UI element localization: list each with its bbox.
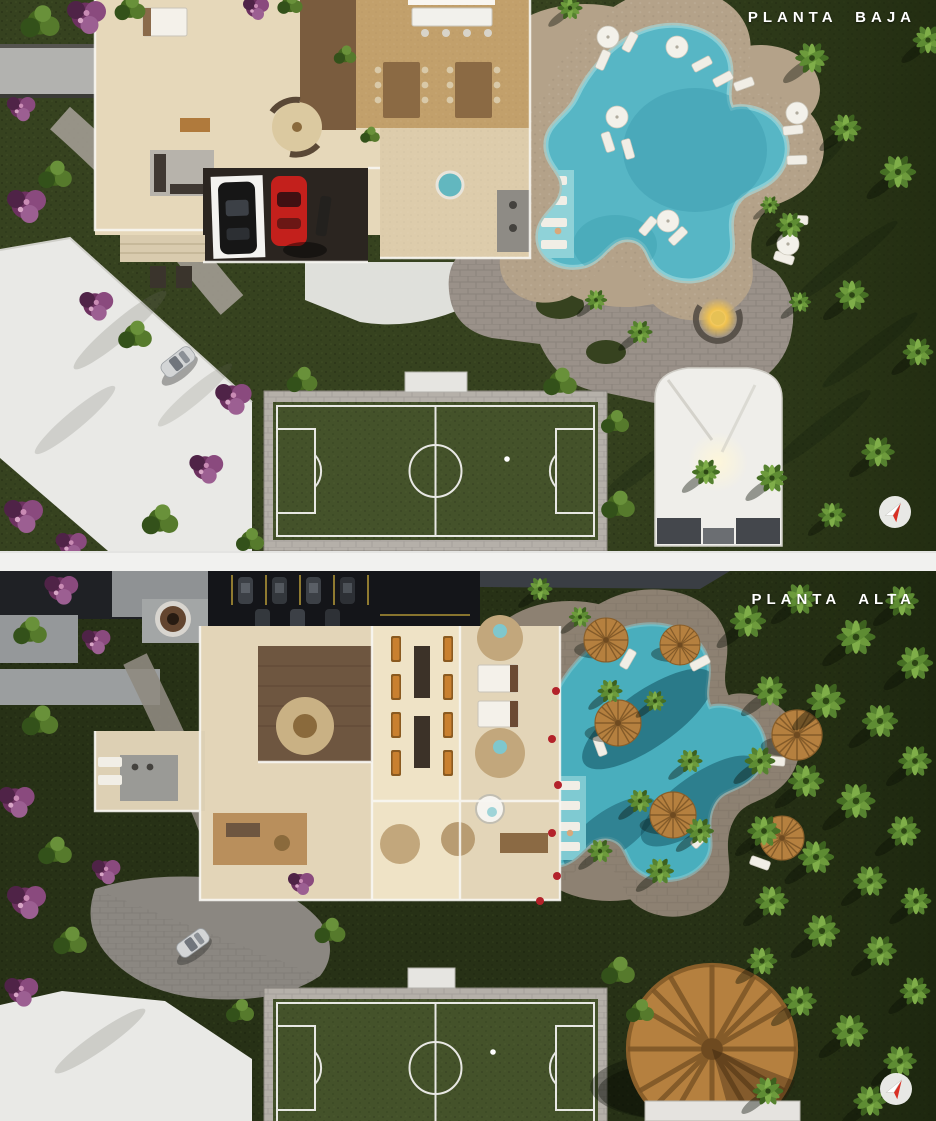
bedroom-2: [475, 701, 525, 778]
floor-label-planta-baja: PLANTA BAJA: [748, 9, 916, 26]
garage: [203, 168, 368, 262]
outdoor-kitchen: [497, 190, 530, 252]
compass-icon: [879, 496, 911, 528]
soccer-field-upper: [264, 968, 607, 1121]
soccer-ball: [504, 456, 510, 462]
bedroom-1: [477, 615, 523, 692]
jacuzzi: [437, 172, 463, 198]
panel-divider: [0, 551, 936, 571]
console-table: [180, 118, 210, 132]
soccer-field: [264, 372, 607, 551]
palapa-bar: [645, 1101, 800, 1121]
bench: [500, 833, 548, 853]
bed: [143, 8, 187, 36]
soccer-ball-upper: [490, 1049, 496, 1055]
house-floor-plan: [95, 0, 530, 288]
black-car: [218, 181, 257, 254]
field-bench-structure: [405, 372, 467, 392]
panel-planta-baja: PLANTA BAJA: [0, 0, 936, 559]
field-structure-upper: [408, 968, 455, 988]
floor-plan-render: PLANTA BAJA: [0, 0, 936, 1121]
floor-label-planta-alta: PLANTA ALTA: [751, 591, 916, 608]
wood-balcony: [213, 813, 307, 865]
compass-icon-upper: [880, 1073, 912, 1105]
jute-rug: [380, 824, 420, 864]
panel-planta-alta: PLANTA ALTA: [0, 571, 936, 1121]
canopy-tent: [655, 368, 782, 546]
